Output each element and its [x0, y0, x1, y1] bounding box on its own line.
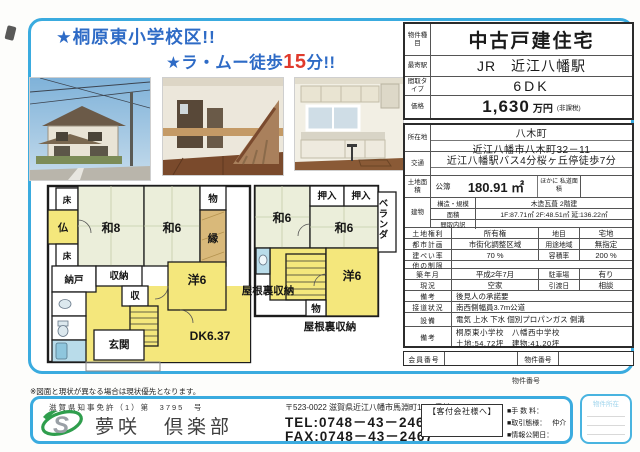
- remarks2-schools: 桐原東小学校 八幡西中学校: [452, 327, 632, 338]
- row-land: 土地面積 公簿 180.91 ㎡ ほかに 私道面積: [405, 175, 632, 197]
- row-layout-value: 6DK: [431, 77, 632, 95]
- room-toilet-1f: [52, 316, 86, 340]
- label-oshiire-1: 押入: [317, 190, 337, 202]
- label-veranda: ベランダ: [377, 198, 389, 240]
- remarks2-tsubo: 土地:54.72坪 建物:41.20坪: [452, 338, 632, 349]
- row-type-value: 中古戸建住宅: [431, 24, 632, 55]
- headline-walk-prefix: ★ラ・ムー徒歩: [166, 54, 283, 72]
- row-remarks1: 備考 後見人の承諾要: [405, 290, 632, 301]
- location-town: 八木町: [431, 125, 632, 140]
- label-wa6a-2f: 和6: [272, 210, 292, 225]
- label-yo6-2f: 洋6: [343, 268, 362, 283]
- row-layout: 間取タイプ 6DK: [405, 76, 632, 95]
- row-land-label: 土地面積: [405, 176, 431, 197]
- row-price-label: 価格: [405, 96, 431, 118]
- label-tokonoma-2: 床: [63, 251, 72, 261]
- label-tokonoma-1: 床: [63, 195, 72, 205]
- table-section-detail: 所在地 八木町 近江八幡市八木町32－11 交通 近江八幡駅バス4分桜ヶ丘停徒歩…: [403, 123, 634, 348]
- label-storage-2f: 物: [311, 303, 321, 315]
- floor-area-value: 1F:87.71㎡ 2F:48.51㎡ 延:136.22㎡: [476, 209, 632, 219]
- land-empty: [581, 176, 632, 197]
- headline-school-district: ★桐原東小学校区!!: [56, 24, 216, 49]
- floorplan: 床 仏 床 和8 和6 物 縁 納戸 収納 収 洋6: [30, 154, 402, 374]
- row-access-label: 交通: [405, 152, 431, 175]
- table-section-top: 物件種目 中古戸建住宅 最寄駅 JR 近江八幡駅 間取タイプ 6DK 価格 1,…: [403, 22, 634, 120]
- row-other-restrictions: 他の制限: [405, 260, 632, 268]
- row-coverage: 建ぺい率 70 % 容積率 200 %: [405, 249, 632, 260]
- label-dk: DK6.37: [190, 329, 231, 343]
- access-empty: [431, 167, 632, 175]
- row-location: 所在地 八木町 近江八幡市八木町32－11: [405, 125, 632, 151]
- land-register: 公簿: [431, 176, 455, 197]
- company-name: 夢咲 倶楽部: [95, 412, 233, 439]
- price-unit: 万円: [533, 100, 553, 115]
- porch-outline: [86, 362, 160, 371]
- row-location-label: 所在地: [405, 125, 431, 151]
- headline-walk-minutes: 15: [283, 51, 306, 73]
- land-note: ほかに 私道面積: [537, 176, 581, 197]
- label-storage-1f: 物: [208, 193, 218, 205]
- label-attic-1: 屋根裏収納: [242, 284, 295, 297]
- price-tax-note: (非課税): [557, 102, 581, 112]
- structure-label: 構造・規模: [431, 198, 476, 208]
- blank-line: [587, 434, 625, 435]
- company-logo-icon: S: [39, 408, 91, 438]
- property-table: 物件種目 中古戸建住宅 最寄駅 JR 近江八幡駅 間取タイプ 6DK 価格 1,…: [403, 22, 634, 366]
- floor-area-label: 面積: [431, 209, 476, 219]
- row-price: 価格 1,630 万円 (非課税): [405, 95, 632, 118]
- row-building: 建物 構造・規模 木造瓦葺 2階建 面積 1F:87.71㎡ 2F:48.51㎡…: [405, 197, 632, 227]
- row-station: 最寄駅 JR 近江八幡駅: [405, 55, 632, 76]
- label-oshiire-2: 押入: [351, 190, 371, 202]
- row-station-label: 最寄駅: [405, 56, 431, 76]
- agent-company-box: 【客付会社様へ】: [421, 404, 503, 437]
- row-member: 会員番号 物件番号: [404, 352, 633, 365]
- bathtub-icon: [56, 343, 67, 359]
- row-type: 物件種目 中古戸建住宅: [405, 24, 632, 55]
- row-rights: 土地権利 所有権 地目 宅地: [405, 227, 632, 238]
- access-value: 近江八幡駅バス4分桜ヶ丘停徒歩7分: [431, 152, 632, 167]
- row-road: 接道状況 南西側幅員3.7m公道: [405, 301, 632, 312]
- property-location-box: 物件所在: [580, 394, 632, 444]
- row-access: 交通 近江八幡駅バス4分桜ヶ丘停徒歩7分: [405, 151, 632, 175]
- deal-type-value: 仲介: [552, 420, 566, 427]
- flyer-page: ★桐原東小学校区!! ★ラ・ムー徒歩15分!!: [0, 0, 640, 452]
- row-facilities: 設備 電気 上水 下水 個別プロパンガス 側溝: [405, 312, 632, 326]
- toilet-icon: [58, 321, 68, 337]
- row-built: 築年月 平成2年7月 駐車場 有り: [405, 268, 632, 279]
- label-attic-2: 屋根裏収納: [304, 320, 357, 333]
- label-butsuma: 仏: [58, 222, 69, 234]
- table-section-member: 会員番号 物件番号: [403, 351, 634, 366]
- label-nando: 納戸: [64, 274, 84, 286]
- svg-text:S: S: [53, 412, 69, 438]
- row-remarks2: 備考 桐原東小学校 八幡西中学校 土地:54.72坪 建物:41.20坪: [405, 326, 632, 346]
- scan-artifact: [4, 25, 16, 41]
- bukken-number-note: 物件番号: [512, 376, 540, 386]
- label-wa6b-2f: 和6: [334, 220, 354, 235]
- headline-walk-suffix: 分!!: [307, 54, 336, 72]
- label-engawa: 縁: [208, 232, 219, 245]
- agent-box-title: 【客付会社様へ】: [422, 406, 502, 417]
- label-wa8: 和8: [101, 220, 121, 235]
- label-shuno: 収納: [109, 270, 128, 282]
- headline-walk-time: ★ラ・ムー徒歩15分!!: [166, 49, 336, 74]
- row-station-value: JR 近江八幡駅: [431, 56, 632, 76]
- label-yo6-1f: 洋6: [188, 272, 207, 287]
- publish-date-label: ■情報公開日：: [507, 430, 553, 440]
- deal-type: ■取引態様：仲介: [507, 418, 566, 428]
- fee-label: ■手 数 料：: [507, 406, 543, 416]
- property-location-label: 物件所在: [582, 398, 630, 408]
- row-building-label: 建物: [405, 198, 431, 227]
- label-genkan: 玄関: [109, 338, 130, 351]
- label-shu: 収: [130, 290, 140, 302]
- price-amount: 1,630: [482, 97, 530, 117]
- row-status: 現況 空家 引渡日 相談: [405, 279, 632, 290]
- toilet-icon-2f: [259, 255, 267, 265]
- row-layout-label: 間取タイプ: [405, 77, 431, 95]
- sink-icon: [59, 300, 71, 309]
- row-type-label: 物件種目: [405, 24, 431, 55]
- company-box: 滋賀県知事免許（1）第 3795 号 S 夢咲 倶楽部 〒523-0022 滋賀…: [30, 396, 573, 444]
- blank-line: [587, 416, 625, 417]
- row-cityplan: 都市計画 市街化調整区域 用途地域 無指定: [405, 238, 632, 249]
- land-area: 180.91 ㎡: [455, 176, 537, 197]
- blank-line: [587, 425, 625, 426]
- structure-value: 木造瓦葺 2階建: [476, 198, 632, 208]
- label-wa6-1f: 和6: [162, 220, 182, 235]
- fax-number: FAX:0748－43－2467: [285, 425, 434, 445]
